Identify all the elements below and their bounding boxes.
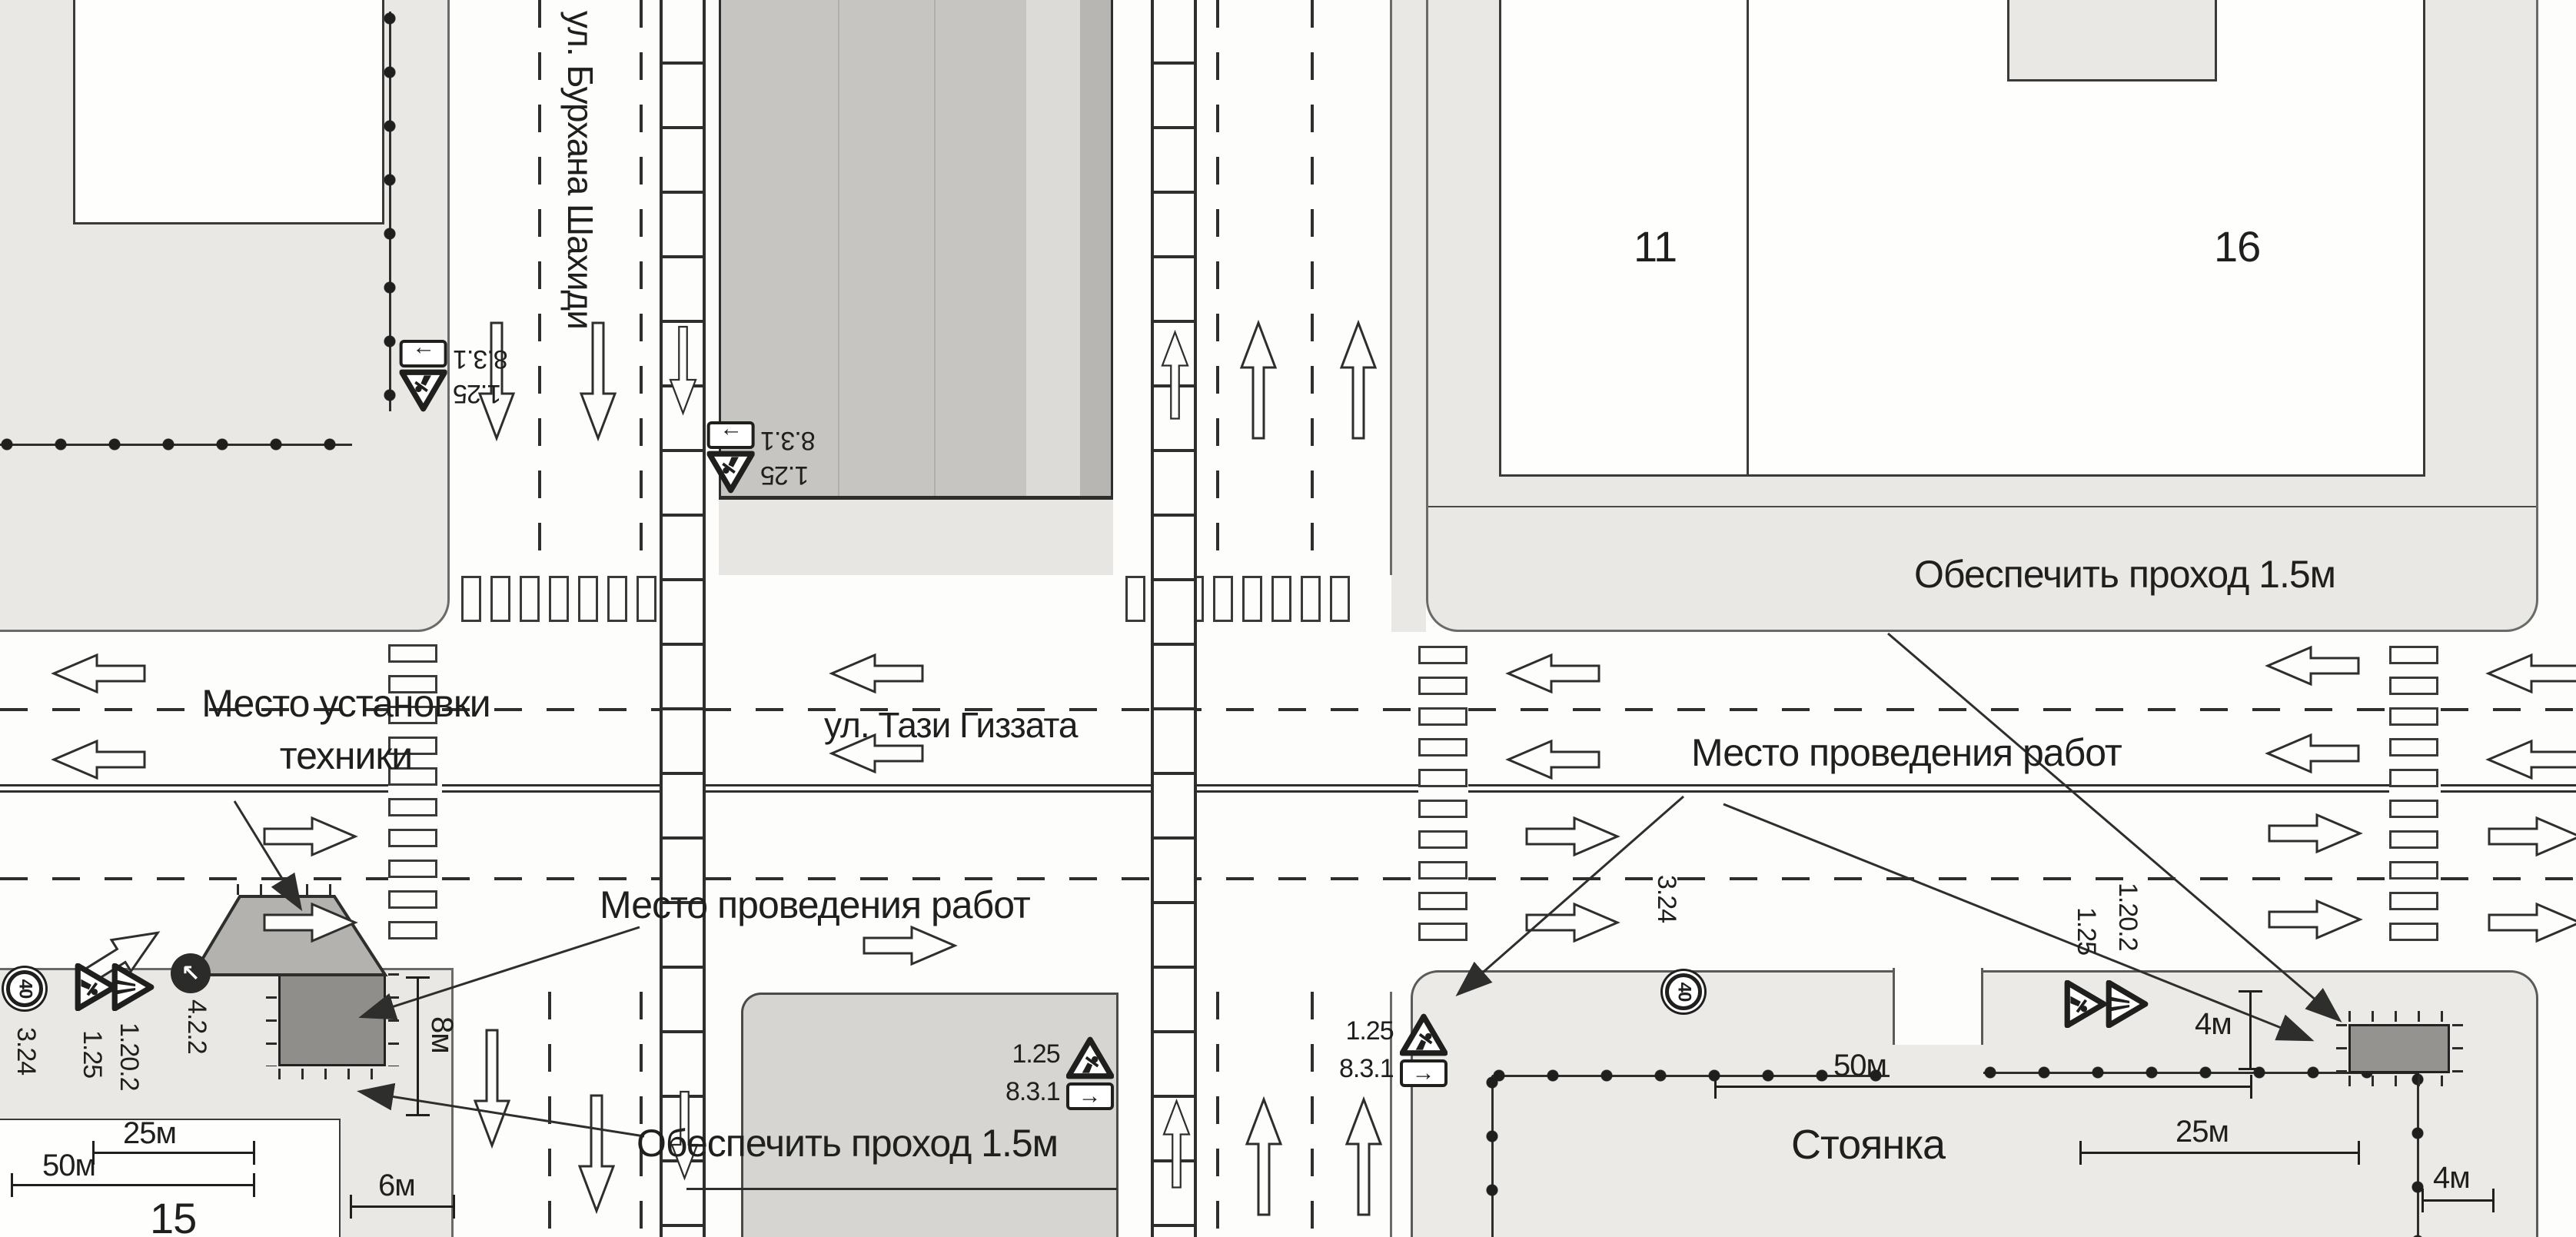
lane-dash-bottom-1 [0,877,388,880]
dim-line-right-25 [2079,1152,2360,1154]
right-street-dash-s1 [1216,992,1219,1237]
annotation-work-area-right: Место проведения работ [1691,730,2122,775]
right-street-east-curb-n [1390,0,1392,575]
sidewalk-sliver-right-street [1391,0,1426,632]
annotation-work-area-left: Место проведения работ [600,883,1030,927]
dim-label-right-4o: 4м [2433,1161,2470,1195]
roadworks-sign-icon [1066,1036,1114,1079]
lane-arrow-up [1241,323,1275,438]
sign-label-1-25: 1.25 [1012,1039,1059,1069]
speed-40-sign-icon: 40 [6,970,43,1007]
sign-group-roadworks-bottom-center: 1.25 8.3.1 → [1005,1036,1114,1110]
barrier-ticks-square-left [266,973,277,1066]
block-bottom-center [741,993,1118,1237]
barrier-ticks-square-right [388,973,399,1066]
lane-arrow-right [2269,901,2360,938]
lane-arrow-down [475,1030,509,1146]
building-11 [1499,0,1749,477]
dim-line-left-6 [350,1205,455,1208]
tram-track-east [1151,0,1197,1237]
lane-dash-top-4 [2441,708,2576,711]
lane-dash-top-3 [1468,708,2389,711]
lane-arrow-up [1341,323,1375,438]
leader-walkway-top [1888,633,2338,1019]
traffic-scheme-canvas: 25м 50м 6м 8м 50м 25м 4м 4м 1.25 8.3.1 →… [0,0,2576,1237]
dim-label-right-25: 25м [2175,1115,2229,1149]
block-number-16: 16 [2214,221,2260,271]
lane-arrow-right [864,927,955,964]
detour-left-sign-icon: ↖ [171,953,211,993]
annotation-equipment-area: Место установки техники [161,678,530,782]
closed-area-dark-strip [1080,0,1111,496]
lane-arrow-left [1508,655,1599,692]
fence-dots-topleft-v [383,12,397,411]
work-square-left [278,973,386,1066]
lane-arrow-left [2488,655,2576,692]
left-street-dash-s2 [640,992,643,1237]
sign-label-1-20-2: 1.20.2 [114,1023,144,1091]
center-double-line-3 [1468,784,2389,793]
dim-line-left-8 [417,976,419,1116]
lane-arrow-right [264,904,355,941]
direction-plate-icon: → [400,340,447,367]
lane-dash-bottom-4 [2441,877,2576,880]
work-rect-right [2348,1024,2450,1073]
sign-label-3-24: 3.24 [11,1027,41,1075]
walkway-bottom-underline [686,1188,1117,1190]
barrier-ticks-rect-right [2452,1024,2463,1073]
fence-dots-topleft-h [0,437,352,451]
barrier-ticks-rect-left [2336,1024,2347,1073]
sign-label-1-20-2: 1.20.2 [2112,883,2142,951]
road-narrows-sign-icon [111,963,155,1011]
sign-group-roadworks-west: 1.25 8.3.1 → [400,340,508,412]
left-street-dash-n2 [640,0,643,573]
center-double-line-2 [442,784,1418,793]
crosswalk-north-left-street [461,576,686,622]
annotation-parking: Стоянка [1791,1121,1945,1169]
sign-group-roadworks-center: 1.25 8.3.1 → [707,421,816,494]
lane-arrow-right [1527,904,1617,941]
lane-arrow-right [1527,818,1617,855]
dim-line-left-50 [11,1184,255,1186]
center-double-line-1 [0,784,388,793]
closed-area-seam-1 [838,0,839,496]
left-street-dash-s1 [548,992,551,1237]
block-top-right-inner-edge [1428,506,2536,507]
dim-line-left-25 [92,1152,255,1154]
lane-arrow-left [54,741,145,778]
lane-arrow-right [2269,815,2360,852]
parking-driveway-gap [1893,968,1983,1045]
lane-arrow-left [2488,741,2576,778]
crosswalk-road-east [2389,646,2438,941]
lane-arrow-right [264,818,355,855]
closed-area-sidewalk-tail [719,500,1113,575]
sign-label-8-3-1: 8.3.1 [454,344,508,374]
right-street-dash-s2 [1311,992,1314,1237]
sign-label-8-3-1: 8.3.1 [1005,1077,1060,1107]
lane-arrow-right [2489,818,2576,855]
leader-to-parking-sign [1459,796,1684,993]
block-number-15: 15 [150,1193,196,1237]
closed-area-light-strip [1026,0,1080,496]
dim-label-left-50: 50м [42,1149,95,1183]
lane-arrow-left [832,655,922,692]
dim-label-right-4w: 4м [2195,1007,2232,1042]
sign-label-3-24: 3.24 [1651,875,1681,923]
dim-line-right-50 [1714,1086,2252,1088]
fence-dots-parking-left-h [1492,1069,1890,1082]
crosswalk-road-center [1418,646,1467,941]
street-name-horizontal: ул. Тази Гиззата [824,704,1077,746]
annotation-walkway-bottom: Обеспечить проход 1.5м [637,1121,1058,1166]
roadworks-sign-icon [1400,1013,1448,1056]
speed-40-sign-icon: 40 [1665,973,1702,1010]
road-narrows-sign-icon [2106,980,2149,1028]
barrier-ticks-rect-bottom [2348,1076,2450,1086]
sign-label-1-25: 1.25 [77,1030,107,1078]
dim-line-right-4w [2249,990,2252,1070]
roadworks-sign-icon [2064,980,2107,1028]
direction-plate-icon: → [707,421,755,449]
lane-arrow-up [1247,1099,1281,1215]
barrier-ticks-trapezoid-top [237,884,337,895]
lane-arrow-left [54,655,145,692]
annotation-walkway-top: Обеспечить проход 1.5м [1914,552,2335,597]
roadworks-sign-icon [707,451,755,494]
center-double-line-4 [2441,784,2576,793]
roadworks-sign-icon [400,369,447,412]
block-number-11: 11 [1634,221,1677,271]
lane-ar­row-down [580,1096,613,1211]
sign-label-1-25: 1.25 [761,460,809,490]
sign-label-1-25: 1.25 [2071,907,2101,955]
lane-arrow-left [2268,647,2358,684]
dim-line-right-4o [2421,1199,2495,1202]
lane-arrow-right [2489,904,2576,941]
direction-plate-icon: → [1066,1082,1114,1110]
sign-label-8-3-1: 8.3.1 [1339,1054,1394,1084]
left-street-dash-n1 [538,0,541,573]
dim-label-right-50: 50м [1833,1049,1886,1083]
lane-dash-bottom-2 [442,877,1418,880]
tram-track-west [660,0,706,1237]
lane-dash-bottom-3 [1468,877,2389,880]
lane-arrow-down [581,323,615,438]
lane-arrow-left [2268,735,2358,772]
fence-dots-parking-left-v [1485,1076,1499,1237]
dim-label-left-8: 8м [424,1016,459,1053]
dim-label-left-6: 6м [378,1169,415,1203]
sign-label-8-3-1: 8.3.1 [761,425,816,455]
right-street-dash-n2 [1311,0,1314,573]
sign-label-1-25: 1.25 [454,378,501,408]
building-16-notch [2007,0,2217,81]
right-street-dash-n1 [1216,0,1219,573]
barrier-ticks-square-bottom [278,1069,386,1079]
sign-label-4-2-2: 4.2.2 [181,999,211,1054]
direction-plate-icon: → [1400,1059,1448,1087]
street-name-vertical: ул. Бурхана Шахиди [560,11,601,329]
dim-label-left-25: 25м [123,1116,176,1151]
barrier-ticks-rect-top [2348,1011,2450,1022]
lane-arrow-left [1508,741,1599,778]
closed-area-seam-2 [934,0,936,496]
building-top-left [73,0,384,224]
sign-group-roadworks-parking: 1.25 8.3.1 → [1339,1013,1448,1087]
sign-label-1-25: 1.25 [1345,1016,1393,1046]
lane-arrow-up [1347,1099,1381,1215]
work-trapezoid-equipment [193,896,385,975]
